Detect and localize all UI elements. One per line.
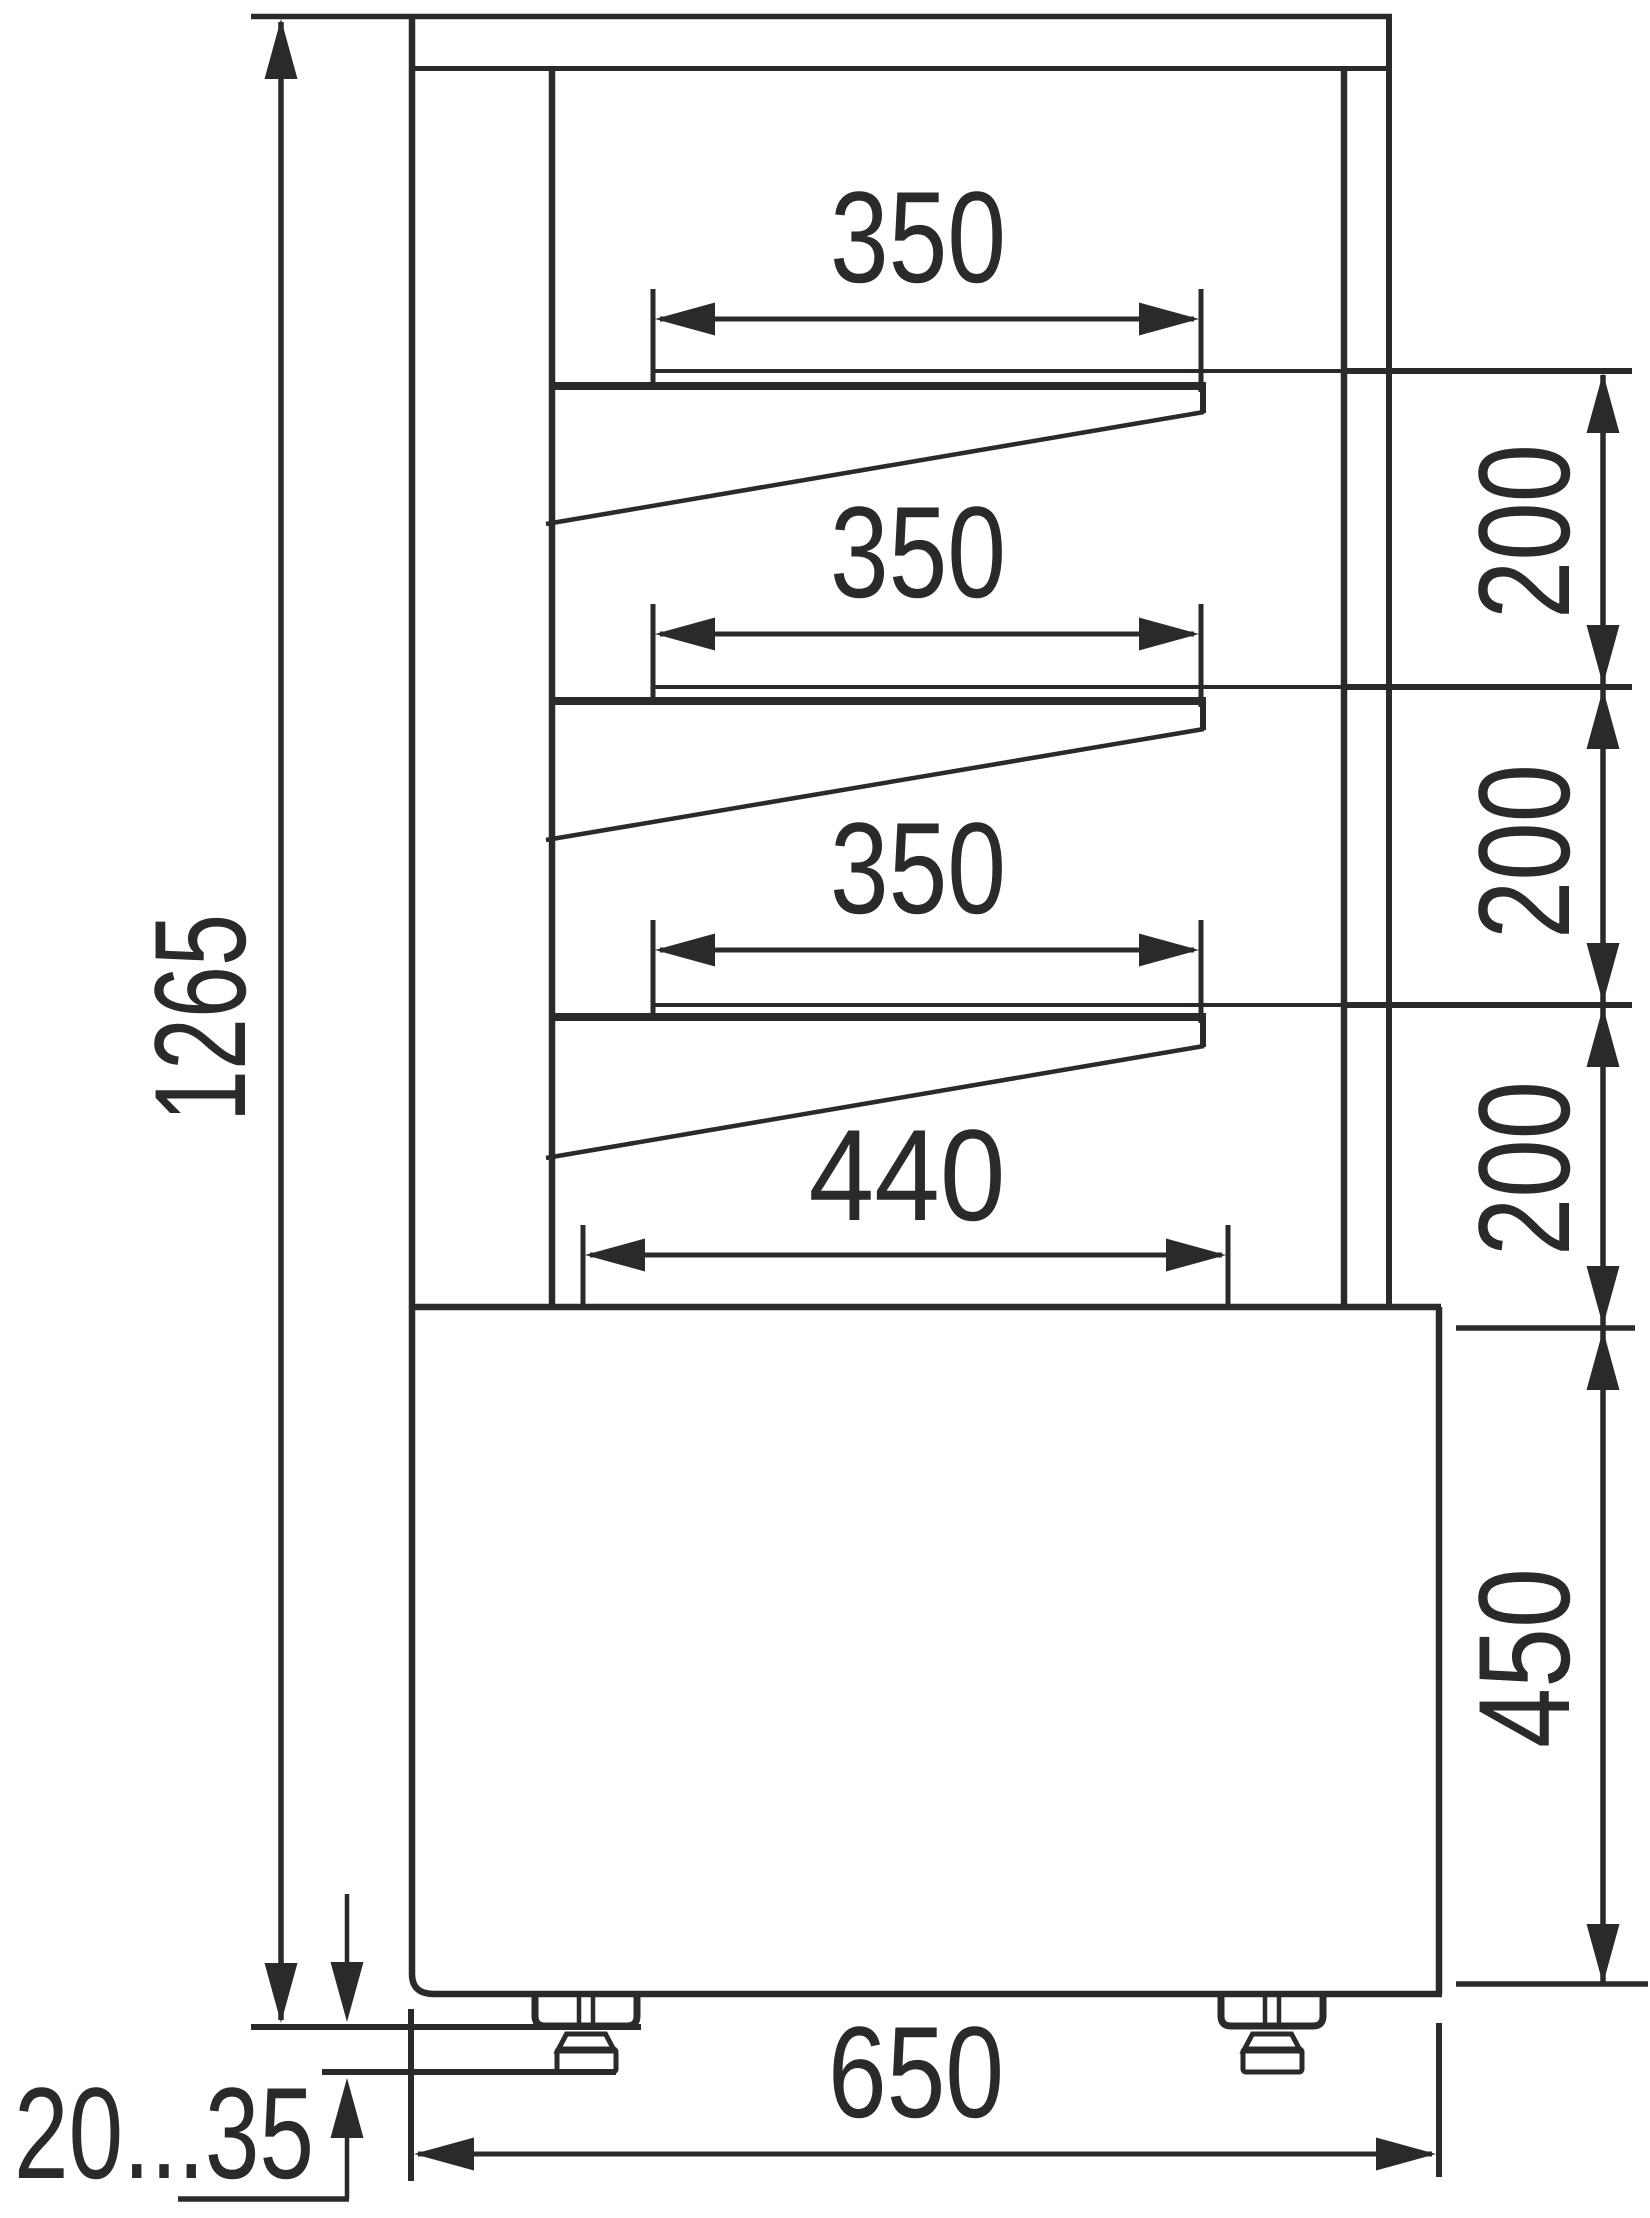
- svg-text:200: 200: [1451, 764, 1597, 939]
- svg-text:450: 450: [1451, 1568, 1597, 1748]
- svg-text:350: 350: [830, 164, 1006, 310]
- svg-text:200: 200: [1451, 444, 1597, 619]
- svg-text:440: 440: [809, 1102, 1006, 1248]
- svg-text:200: 200: [1451, 1081, 1597, 1256]
- svg-text:20...35: 20...35: [14, 2060, 314, 2206]
- svg-text:350: 350: [830, 479, 1006, 625]
- svg-text:1265: 1265: [127, 914, 273, 1122]
- svg-text:350: 350: [830, 795, 1006, 941]
- svg-text:650: 650: [828, 1999, 1004, 2145]
